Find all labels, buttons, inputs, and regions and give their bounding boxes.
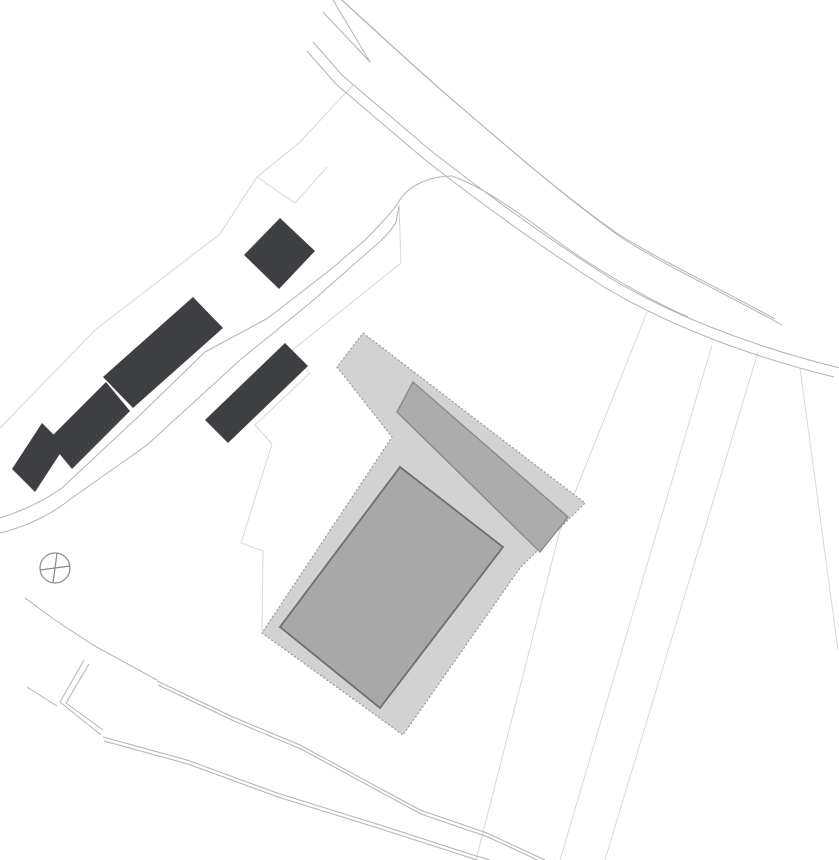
main-road-north-edge-pair	[335, 0, 775, 319]
parcel-line-southeast-3	[605, 352, 758, 860]
site-plan-page	[0, 0, 839, 860]
parcel-line-southeast-2	[560, 345, 712, 860]
road-fork-island	[323, 0, 370, 62]
main-road-south-edge	[313, 42, 839, 368]
retaining-wall-inner	[66, 664, 103, 730]
layer-site	[262, 333, 585, 735]
main-road-north-edge	[342, 0, 782, 325]
boundary-spur	[27, 687, 57, 706]
parcel-line-north-notch	[257, 167, 327, 203]
footpath-lower	[103, 737, 490, 860]
existing-building-north	[244, 218, 315, 289]
existing-building-row-middle	[48, 382, 130, 469]
junction-boundary-line	[452, 176, 688, 317]
boundary-southwest	[25, 598, 157, 680]
layer-marker	[40, 553, 70, 583]
site-plan-canvas	[0, 0, 839, 860]
parcel-line-east	[800, 368, 838, 650]
main-road-south-edge-pair	[307, 51, 834, 377]
existing-building-small-east	[205, 343, 308, 443]
